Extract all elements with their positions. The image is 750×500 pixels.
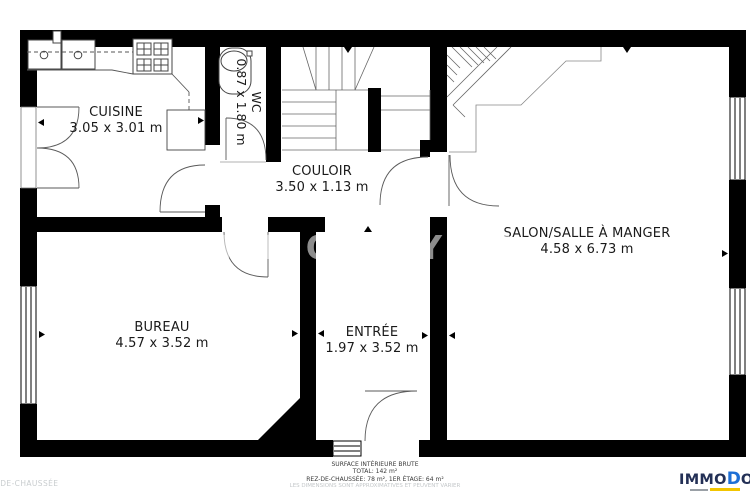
- room-name: COULOIR: [242, 164, 402, 180]
- logo-text-immo: IMMO: [679, 472, 727, 488]
- footer-surface-info: SURFACE INTÉRIEURE BRUTE TOTAL: 142 m² R…: [230, 461, 520, 490]
- room-dims: 3.50 x 1.13 m: [242, 180, 402, 196]
- room-dims: 4.57 x 3.52 m: [82, 336, 242, 352]
- footer-line-total: TOTAL: 142 m²: [230, 468, 520, 475]
- room-label-couloir: COULOIR 3.50 x 1.13 m: [242, 164, 402, 196]
- room-label-bureau: BUREAU 4.57 x 3.52 m: [82, 320, 242, 352]
- logo-d-icon: D: [727, 469, 741, 489]
- room-dims: 3.05 x 3.01 m: [36, 121, 196, 137]
- room-dims: 1.97 x 3.52 m: [292, 341, 452, 357]
- floor-plan-page: CUISINE 3.05 x 3.01 m WC 0.87 x 1.80 m C…: [0, 0, 750, 500]
- watermark: IMMODOYEN: [140, 228, 580, 267]
- tagline-yellow-bar: [710, 488, 740, 491]
- room-name: CUISINE: [36, 105, 196, 121]
- room-dims: 0.87 x 1.80 m: [234, 52, 249, 152]
- stair-hatch: [447, 47, 601, 152]
- logo-tagline-underline: [690, 488, 742, 492]
- windows: [21, 97, 745, 456]
- footer-line-disclaimer: LES DIMENSIONS SONT APPROXIMATIVES ET PE…: [230, 483, 520, 490]
- floor-level-label: REZ-DE-CHAUSSÉE: [0, 479, 58, 488]
- room-name: ENTRÉE: [292, 325, 452, 341]
- agency-logo: IMMODOYEN: [679, 472, 750, 487]
- footer-line-surface: SURFACE INTÉRIEURE BRUTE: [230, 461, 520, 468]
- room-label-wc: WC 0.87 x 1.80 m: [232, 52, 264, 152]
- footer-line-floors: REZ-DE-CHAUSSÉE: 78 m², 1ER ÉTAGE: 64 m²: [230, 476, 520, 483]
- tagline-gray-bar: [690, 489, 708, 491]
- room-name: WC: [249, 52, 264, 152]
- logo-text-oyen: OYEN: [741, 472, 750, 488]
- cooktop-symbol: [133, 39, 172, 74]
- room-name: BUREAU: [82, 320, 242, 336]
- room-label-entree: ENTRÉE 1.97 x 3.52 m: [292, 325, 452, 357]
- room-label-cuisine: CUISINE 3.05 x 3.01 m: [36, 105, 196, 137]
